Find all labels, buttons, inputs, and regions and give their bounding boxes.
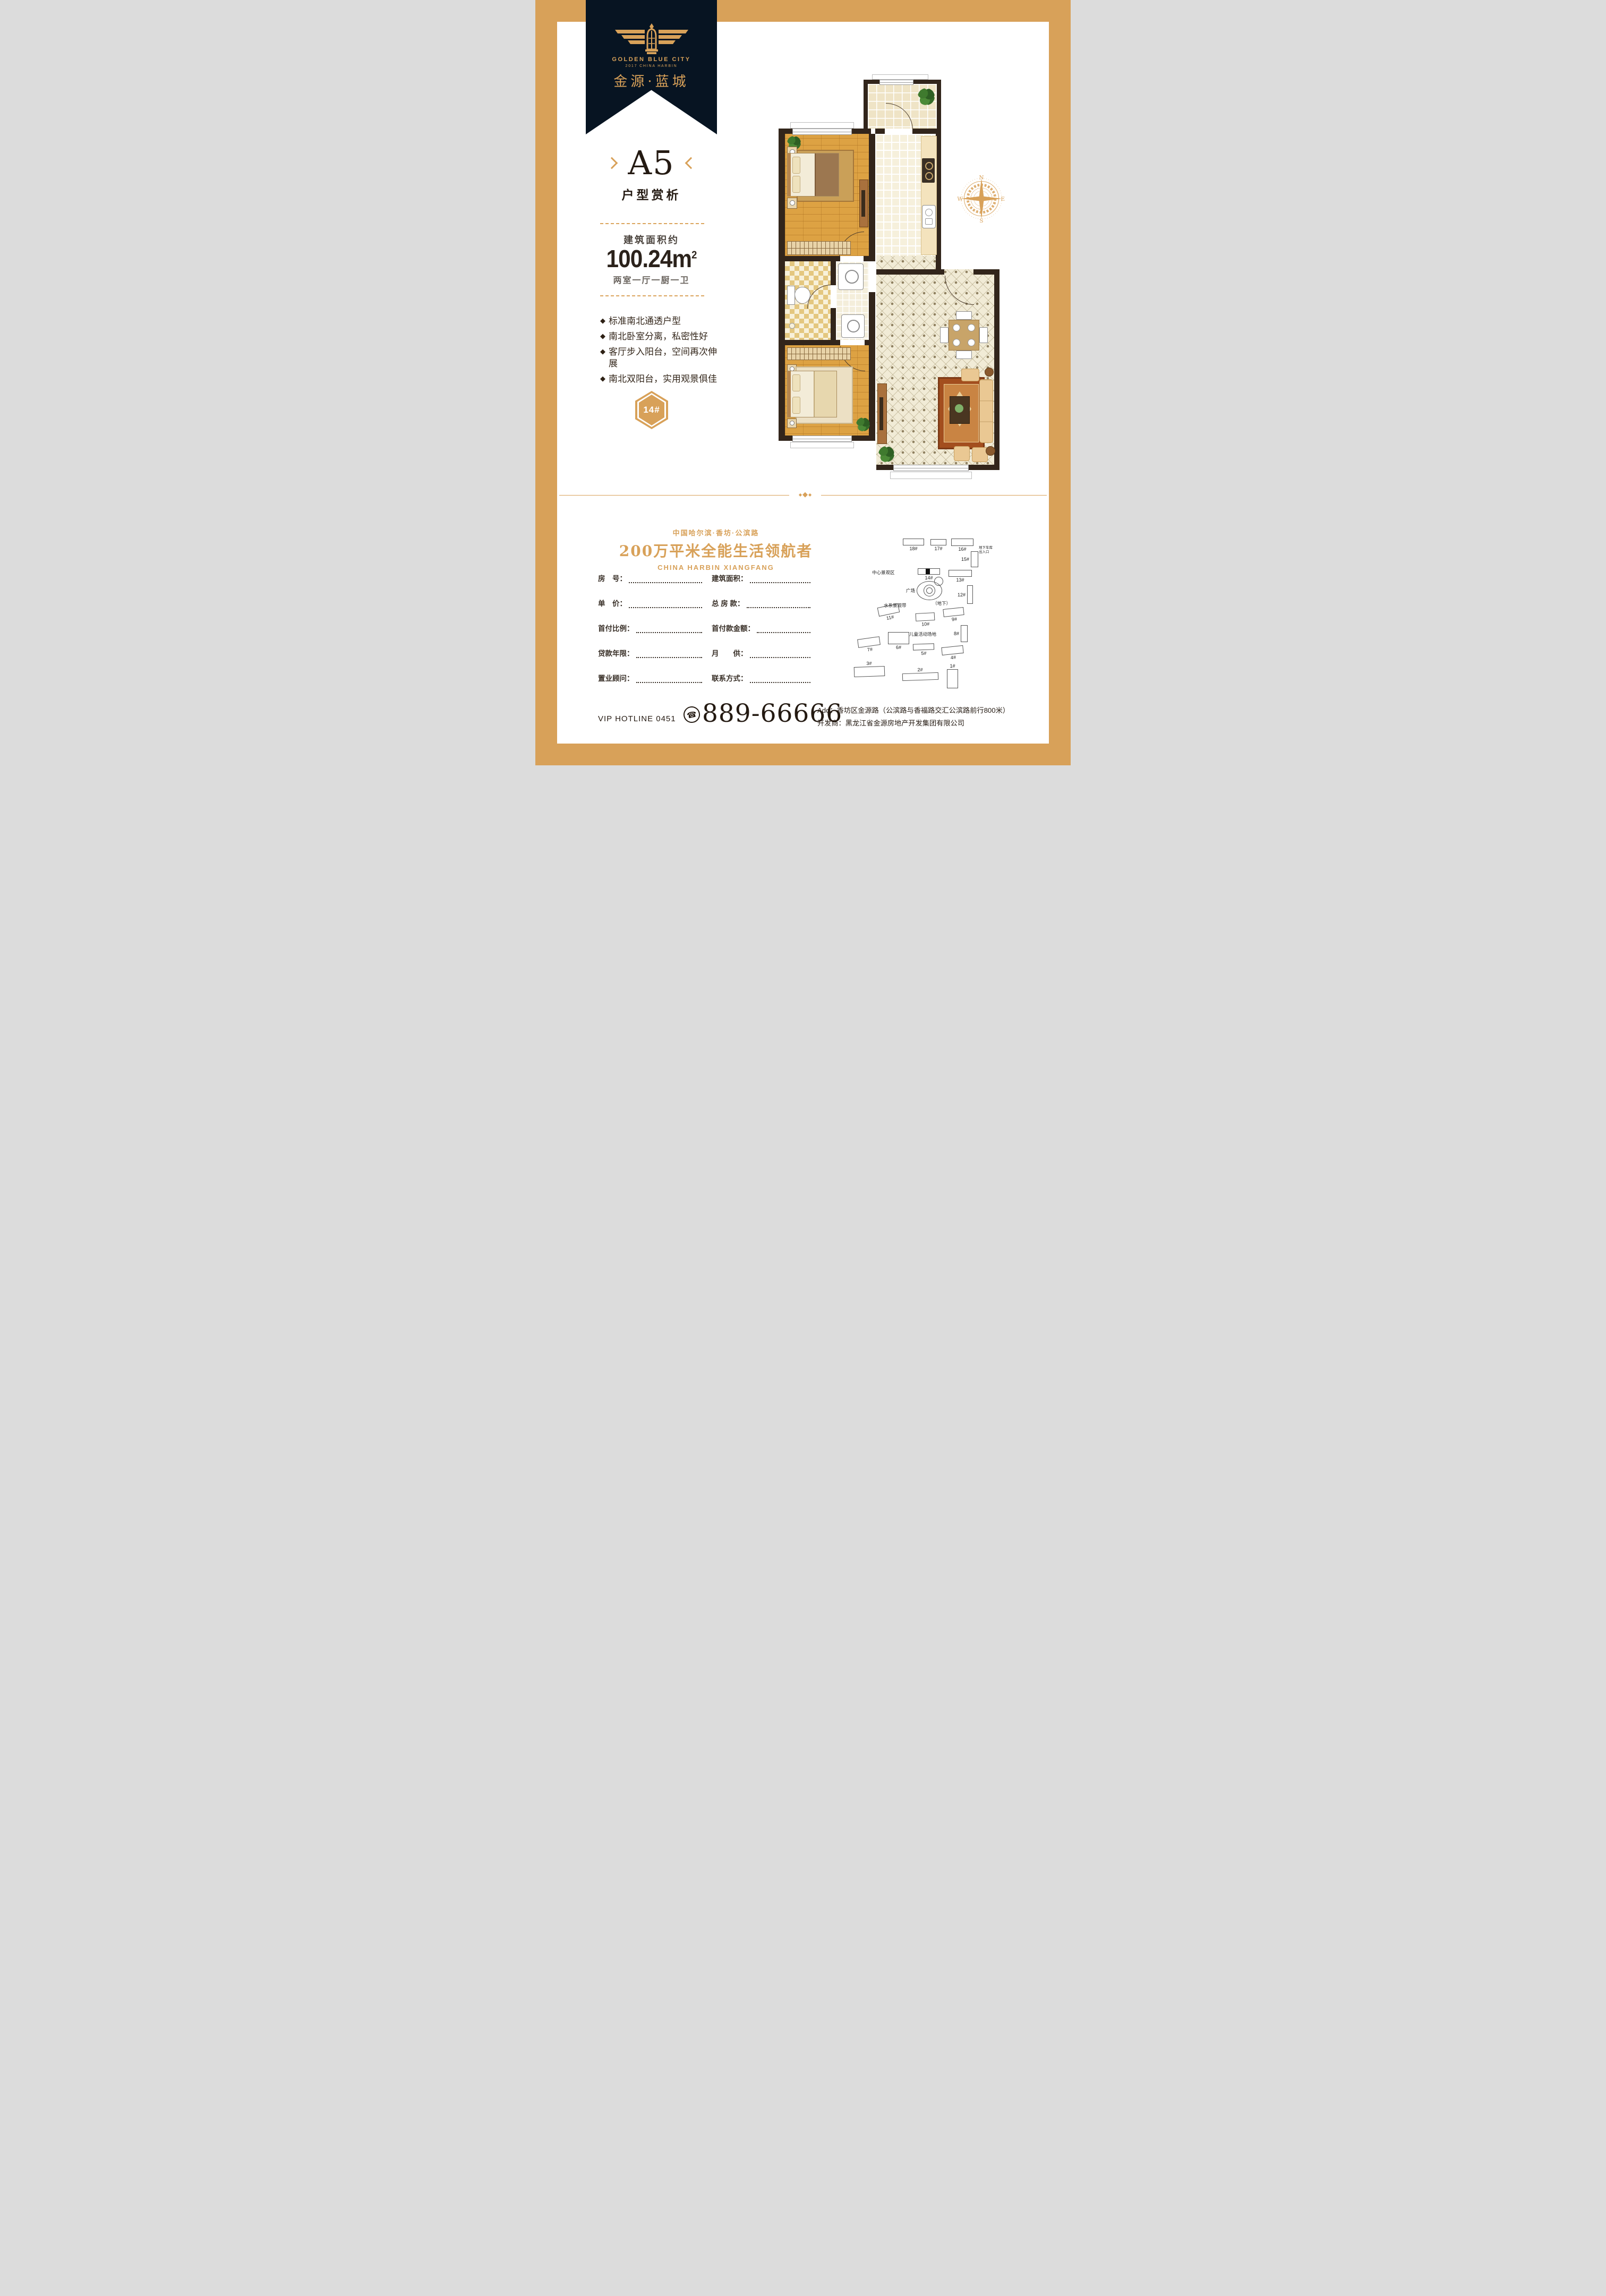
dining-chair: [979, 327, 988, 343]
logo-title: GOLDEN BLUE CITY: [586, 56, 717, 63]
site-label-children: 儿童活动场地: [909, 631, 936, 637]
floor-drain: [789, 323, 795, 329]
form-blank-line: [636, 674, 703, 683]
north-outer-sill: [790, 122, 854, 129]
chevron-right-icon: [606, 157, 618, 169]
dining-chair: [956, 351, 972, 359]
disclaimer-text: 本户型图及资料仅为示意，非售房合同要约，实际户型及数据以政府批准之建筑图则为准: [1050, 577, 1066, 752]
site-label-water: 水系景观带: [884, 602, 907, 609]
site-label-center-view: 中心景观区: [872, 569, 895, 576]
living-balcony-window: [893, 465, 969, 471]
building-16: 16#: [951, 539, 973, 546]
building-badge: 14#: [635, 391, 668, 429]
tv-cabinet: [859, 180, 868, 227]
phone-icon: ☎: [682, 705, 702, 724]
unit-subtitle: 户型赏析: [586, 185, 717, 203]
form-blank-line: [629, 599, 702, 608]
coffee-table: [950, 396, 970, 424]
poster-page: GOLDEN BLUE CITY 2017 CHINA HARBIN 金源·蓝城…: [535, 0, 1071, 765]
south-outer-sill: [790, 442, 854, 448]
wardrobe: [787, 241, 851, 255]
stove: [922, 158, 935, 183]
tagline-english: CHINA HARBIN XIANGFANG: [599, 564, 833, 571]
feature-text: 南北双阳台，实用观景俱佳: [609, 373, 717, 385]
form-blank-line: [750, 674, 811, 683]
project-tagline: 中国哈尔滨·香坊·公滨路 200万平米全能生活领航者 CHINA HARBIN …: [599, 527, 833, 571]
dining-chair: [956, 311, 972, 320]
kitchen-sink: [922, 205, 936, 228]
form-row: 房 号： 建筑面积：: [598, 573, 810, 583]
living-outer-sill: [890, 472, 972, 479]
area-value: 100.24m2: [591, 244, 712, 273]
form-blank-line: [747, 599, 810, 608]
side-table: [985, 368, 994, 377]
form-blank-line: [629, 574, 702, 583]
bedroom-south-window: [792, 436, 852, 442]
sofa: [979, 379, 993, 443]
tagline-location: 中国哈尔滨·香坊·公滨路: [599, 527, 833, 537]
form-row: 单 价： 总 房 款：: [598, 598, 810, 608]
form-label: 总 房 款：: [712, 598, 745, 608]
building-7: 7#: [857, 636, 881, 648]
side-table: [986, 446, 995, 456]
wardrobe: [787, 347, 851, 360]
building-3: 3#: [854, 666, 885, 677]
dashed-divider-bottom: [600, 295, 704, 296]
feature-item: ◆南北双阳台，实用观景俱佳: [600, 373, 722, 385]
plant: [878, 446, 894, 462]
compass-north-label: N: [979, 175, 984, 181]
area-superscript: 2: [691, 250, 696, 261]
feature-text: 标准南北通透户型: [609, 315, 681, 327]
feature-text: 南北卧室分离，私密性好: [609, 331, 708, 343]
chevron-left-icon: [685, 157, 697, 169]
developer-line: 开发商：黑龙江省金源房地产开发集团有限公司: [817, 717, 1040, 730]
kitchen-counter: [921, 136, 937, 255]
plant: [856, 417, 870, 431]
building-9: 9#: [943, 607, 964, 617]
form-label: 贷款年限：: [598, 647, 634, 658]
address-line: Add：香坊区金源路（公滨路与香福路交汇公滨路前行800米）: [817, 704, 1040, 717]
form-label: 单 价：: [598, 598, 627, 608]
bed-south: [787, 371, 837, 417]
dashed-divider-top: [600, 223, 704, 224]
site-label-underground: （地下）: [933, 600, 951, 607]
address-block: Add：香坊区金源路（公滨路与香福路交汇公滨路前行800米） 开发商：黑龙江省金…: [817, 704, 1040, 730]
armchair: [954, 446, 970, 461]
ornament-diamond: ◆: [802, 490, 808, 499]
golden-blue-city-logo-icon: [612, 22, 691, 55]
feature-item: ◆南北卧室分离，私密性好: [600, 331, 722, 343]
diamond-bullet-icon: ◆: [600, 315, 605, 326]
building-2: 2#: [902, 672, 938, 681]
building-4: 4#: [941, 645, 963, 655]
form-label: 房 号：: [598, 573, 627, 583]
plaza-feature: [917, 581, 942, 600]
compass-east-label: E: [1001, 196, 1005, 202]
bedroom-north-window: [792, 129, 852, 135]
form-blank-line: [750, 649, 811, 658]
tv-cabinet: [877, 383, 887, 444]
form-blank-line: [757, 624, 810, 633]
hotline-label: VIP HOTLINE 0451: [598, 714, 676, 723]
building-13: 13#: [949, 570, 972, 577]
nightstand: [787, 419, 797, 428]
nightstand: [787, 198, 797, 209]
diamond-bullet-icon: ◆: [600, 373, 605, 384]
balcony-outer-sill: [872, 74, 928, 80]
entry-landing: [936, 256, 994, 269]
room-layout: 两室一厅一厨一卫: [586, 273, 717, 286]
form-label: 建筑面积：: [712, 573, 748, 583]
form-label: 联系方式：: [712, 672, 748, 683]
building-1: 1#: [947, 669, 958, 688]
balcony-window: [879, 80, 913, 85]
diamond-bullet-icon: ◆: [600, 346, 605, 357]
compass-south-label: S: [979, 218, 983, 223]
unit-title-row: A5: [586, 148, 717, 178]
compass-west-label: W: [957, 196, 963, 202]
dining-table: [949, 320, 979, 351]
form-row: 贷款年限： 月 供：: [598, 647, 810, 658]
tagline-headline: 200万平米全能生活领航者: [599, 540, 833, 561]
ornament-diamond: ◆: [808, 492, 811, 497]
brand-name: 金源·蓝城: [586, 71, 717, 90]
building-12: 12#: [967, 585, 973, 604]
building-18: 18#: [903, 539, 924, 545]
form-blank-line: [636, 649, 703, 658]
feature-item: ◆客厅步入阳台，空间再次伸展: [600, 346, 722, 370]
ornament-diamond: ◆: [799, 492, 802, 497]
toilet-tank: [787, 286, 795, 305]
form-label: 首付款金额：: [712, 622, 755, 633]
form-label: 置业顾问：: [598, 672, 634, 683]
building-17: 17#: [930, 539, 946, 545]
site-label-plaza: 广场: [906, 587, 915, 594]
diamond-bullet-icon: ◆: [600, 331, 605, 342]
balcony-plant: [918, 88, 935, 105]
sales-form: 房 号： 建筑面积： 单 价： 总 房 款： 首付比例： 首付款金额： 贷款年限…: [598, 573, 810, 697]
divider-ornament-icon: ◆◆◆: [789, 490, 821, 499]
area-number: 100.24m: [606, 245, 692, 272]
brand-ribbon: GOLDEN BLUE CITY 2017 CHINA HARBIN 金源·蓝城: [586, 0, 717, 134]
site-label-garage: 地下车库 出入口: [979, 546, 998, 555]
floor-plan: [779, 74, 1002, 494]
building-5: 5#: [913, 643, 934, 650]
bed-north: [787, 153, 839, 197]
building-14: 14#: [918, 568, 940, 575]
compass-icon: N E S W: [957, 174, 1006, 223]
form-label: 首付比例：: [598, 622, 634, 633]
building-10: 10#: [916, 612, 935, 621]
feature-list: ◆标准南北通透户型 ◆南北卧室分离，私密性好 ◆客厅步入阳台，空间再次伸展 ◆南…: [600, 315, 722, 389]
form-row: 置业顾问： 联系方式：: [598, 672, 810, 683]
armchair: [961, 369, 979, 381]
building-8: 8#: [961, 625, 968, 642]
building-15: 15#: [971, 551, 978, 567]
logo-subtitle: 2017 CHINA HARBIN: [586, 64, 717, 68]
form-label: 月 供：: [712, 647, 748, 658]
building-6: 6#: [888, 632, 909, 644]
feature-item: ◆标准南北通透户型: [600, 315, 722, 327]
wash-basin: [841, 314, 865, 338]
unit-name: A5: [628, 147, 674, 180]
form-row: 首付比例： 首付款金额：: [598, 622, 810, 633]
form-blank-line: [636, 624, 703, 633]
highlighted-unit: [926, 569, 929, 574]
feature-text: 客厅步入阳台，空间再次伸展: [609, 346, 722, 370]
form-blank-line: [750, 574, 811, 583]
dining-chair: [940, 327, 949, 343]
site-plan: 18# 17# 16# 15# 14# 13# 12# 11# 10# 9# 8…: [853, 537, 1024, 692]
washing-machine: [838, 263, 864, 290]
